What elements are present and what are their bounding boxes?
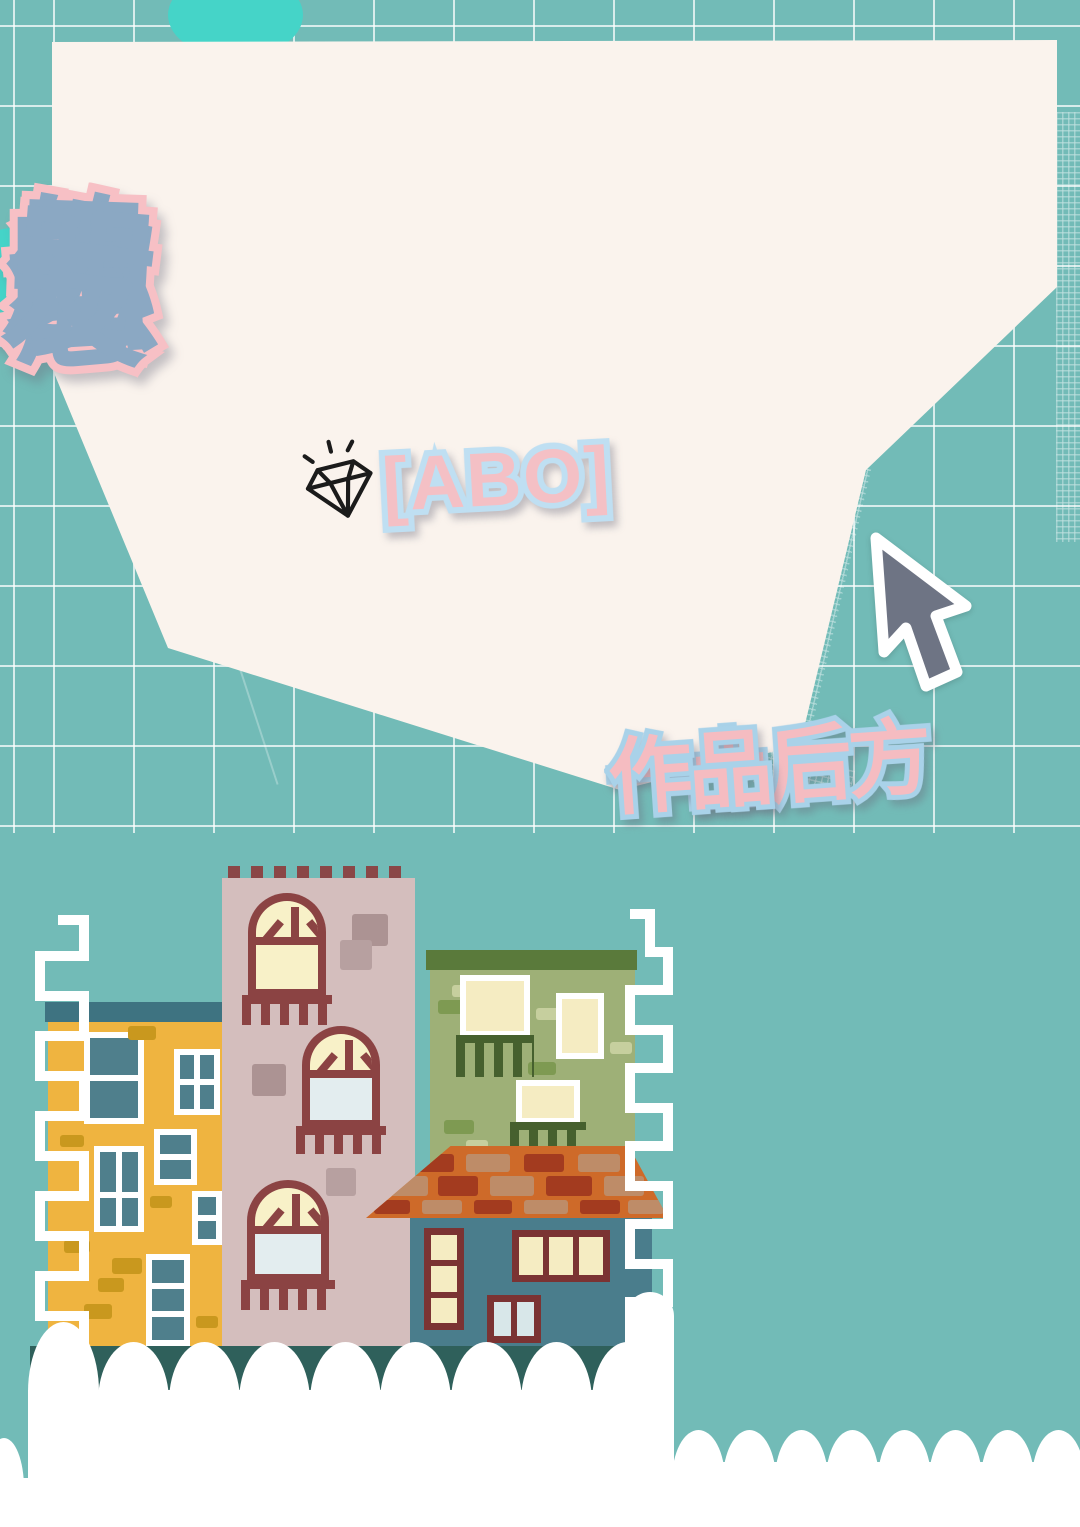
scallop-base (0, 1478, 1080, 1527)
genre-tag: [ABO] (380, 430, 614, 529)
book-cover: 想当你的男朋友 想当你的男朋友 [ABO] 一土后方 作品 (0, 0, 1080, 1527)
zigzag-left (0, 0, 1080, 1527)
